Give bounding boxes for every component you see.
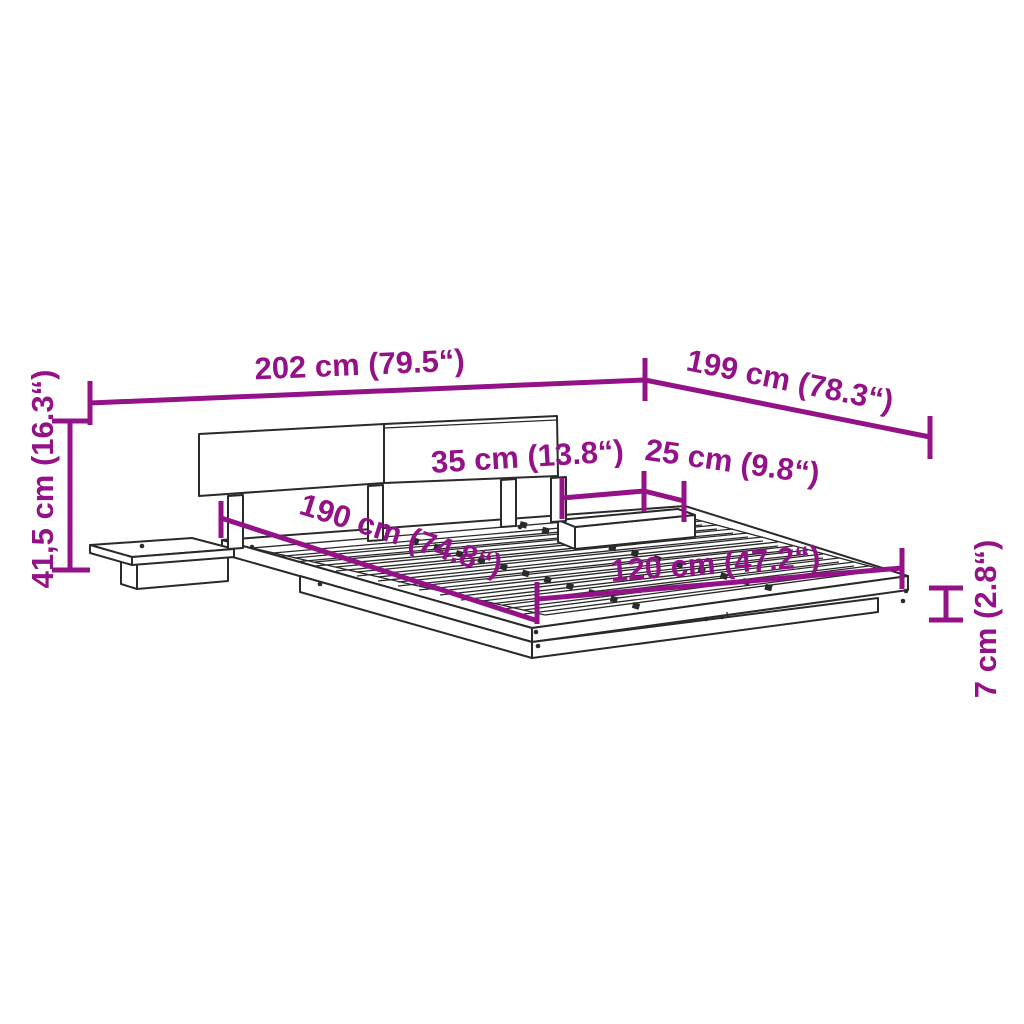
dimension-label-overall-width: 202 cm (79.5“): [254, 343, 466, 387]
diagram-canvas: 202 cm (79.5“) 199 cm (78.3“) 41,5 cm (1…: [0, 0, 1024, 1024]
left-nightstand: [90, 538, 234, 589]
dimension-label-total-height: 41,5 cm (16.3“): [25, 370, 60, 589]
dimension-label-nightstand-depth: 25 cm (9.8“): [643, 432, 822, 491]
dimension-total-height: 41,5 cm (16.3“): [25, 370, 90, 589]
dimension-label-frame-height: 7 cm (2.8“): [968, 540, 1003, 699]
dimension-frame-height: 7 cm (2.8“): [929, 540, 1003, 699]
product-dimension-diagram: 202 cm (79.5“) 199 cm (78.3“) 41,5 cm (1…: [0, 0, 1024, 1024]
dimension-overall-width: 202 cm (79.5“): [90, 343, 645, 425]
